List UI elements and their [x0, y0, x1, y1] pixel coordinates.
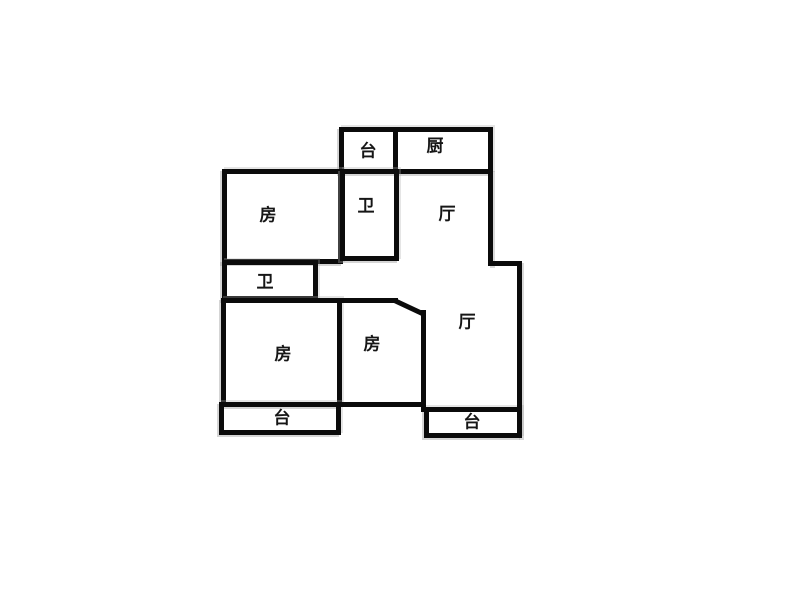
label-balcony-left: 台: [274, 411, 291, 428]
label-bedroom-middle: 房: [364, 337, 381, 354]
label-bedroom-upper: 房: [260, 208, 277, 225]
label-bath-middle: 卫: [257, 275, 274, 292]
label-balcony-top: 台: [360, 144, 377, 161]
wall-corridor-bottom: [222, 298, 398, 303]
label-kitchen: 厨: [427, 139, 444, 156]
label-bath-upper: 卫: [358, 199, 375, 216]
wall-bedroom-middle-right: [421, 310, 426, 412]
label-balcony-right: 台: [464, 415, 481, 432]
label-hall-lower: 厅: [459, 315, 476, 332]
floorplan-canvas: 台 厨 房 卫 厅 卫 房 房 厅 台 台: [0, 0, 800, 600]
label-hall-upper: 厅: [439, 207, 456, 224]
wall-right-lower: [517, 261, 522, 438]
wall-kitchen-divider: [393, 127, 398, 174]
label-bedroom-left: 房: [275, 347, 292, 364]
bedroom-upper-outline: [222, 169, 343, 264]
wall-right-upper: [488, 169, 493, 266]
wall-bottom-middle: [337, 402, 426, 407]
